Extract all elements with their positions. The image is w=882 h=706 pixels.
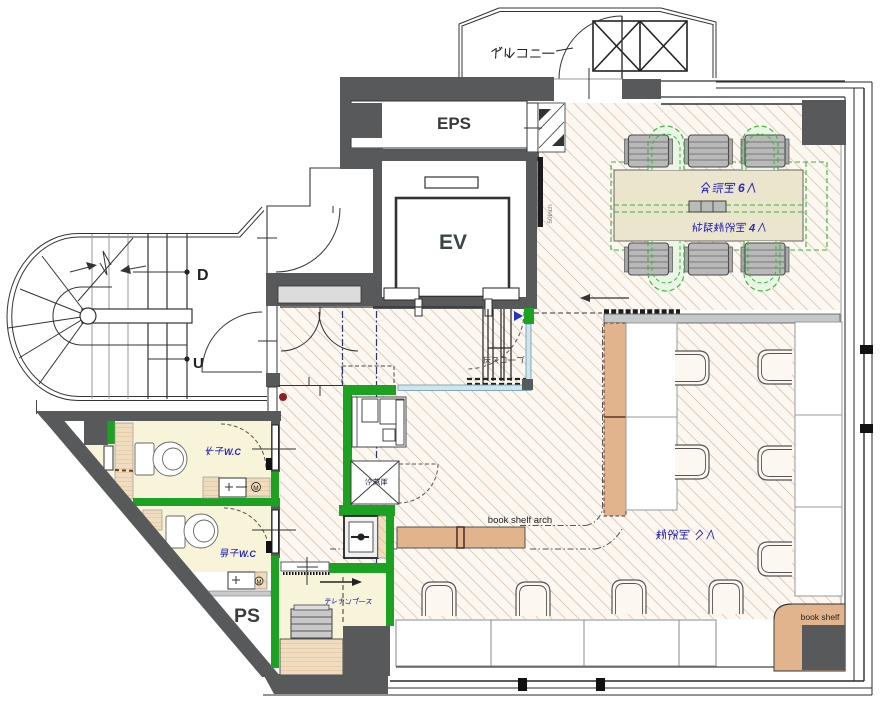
svg-text:D: D xyxy=(197,267,209,284)
svg-text:6: 6 xyxy=(738,181,745,195)
svg-text:PS: PS xyxy=(234,605,260,627)
svg-text:EPS: EPS xyxy=(437,114,471,133)
svg-text:book shelf: book shelf xyxy=(801,612,840,622)
svg-text:W.C: W.C xyxy=(224,447,241,457)
svg-text:EV: EV xyxy=(439,231,467,254)
svg-text:50inch: 50inch xyxy=(547,204,554,224)
svg-text:M: M xyxy=(253,485,258,492)
svg-text:4: 4 xyxy=(748,223,755,235)
svg-text:W.C: W.C xyxy=(239,549,256,559)
svg-text:M: M xyxy=(257,580,262,586)
svg-text:book shelf arch: book shelf arch xyxy=(488,515,552,526)
